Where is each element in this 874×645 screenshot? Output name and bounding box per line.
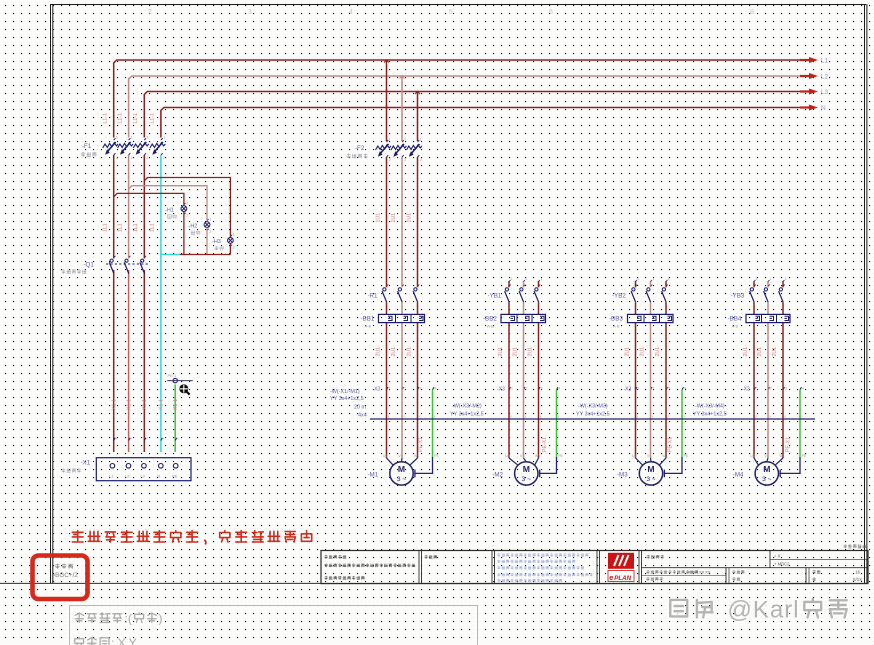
svg-text:4: 4 bbox=[435, 387, 437, 391]
svg-text:M: M bbox=[647, 464, 654, 474]
svg-text:1U1: 1U1 bbox=[391, 213, 397, 223]
svg-text:2U1: 2U1 bbox=[375, 347, 381, 357]
svg-text:4x4: 4x4 bbox=[358, 413, 367, 419]
svg-text:PE-X1: PE-X1 bbox=[418, 437, 424, 452]
svg-text:4: 4 bbox=[684, 387, 686, 391]
svg-text:4: 4 bbox=[802, 387, 804, 391]
svg-text:V1: V1 bbox=[398, 454, 402, 458]
svg-text:3 ~: 3 ~ bbox=[762, 476, 771, 483]
svg-text:3: 3 bbox=[248, 9, 252, 16]
svg-text:16: 16 bbox=[855, 570, 860, 575]
svg-text:X/1X: X/1X bbox=[853, 577, 862, 582]
svg-text:2U1: 2U1 bbox=[639, 347, 645, 357]
svg-text:2U1: 2U1 bbox=[772, 347, 778, 357]
svg-text:-YB2: -YB2 bbox=[612, 293, 626, 300]
svg-text:1: 1 bbox=[785, 277, 787, 281]
svg-text:PE-X1: PE-X1 bbox=[668, 437, 674, 452]
svg-text:3 ~: 3 ~ bbox=[646, 476, 655, 483]
svg-text:M: M bbox=[398, 464, 405, 474]
svg-text:2: 2 bbox=[420, 158, 422, 162]
svg-text:-BB4: -BB4 bbox=[728, 316, 742, 323]
svg-text:2U1: 2U1 bbox=[498, 347, 504, 357]
svg-text:-F2: -F2 bbox=[355, 145, 365, 152]
svg-text:1L1: 1L1 bbox=[133, 223, 139, 232]
svg-text:-W(-X1/-M1): -W(-X1/-M1) bbox=[330, 389, 360, 395]
svg-text:1: 1 bbox=[668, 277, 670, 281]
svg-text:2: 2 bbox=[131, 156, 133, 160]
svg-text:1: 1 bbox=[404, 138, 406, 142]
svg-text:2U1: 2U1 bbox=[512, 347, 518, 357]
svg-text:-M4: -M4 bbox=[733, 472, 744, 479]
svg-text:-X1: -X1 bbox=[81, 460, 91, 467]
svg-text:3: 3 bbox=[541, 387, 543, 391]
svg-text:PE-X1: PE-X1 bbox=[542, 437, 548, 452]
svg-text:-W(-X3/-M4): -W(-X3/-M4) bbox=[695, 404, 725, 410]
svg-text:3: 3 bbox=[668, 387, 670, 391]
svg-text:1: 1 bbox=[525, 277, 527, 281]
svg-text:-X3: -X3 bbox=[373, 387, 381, 393]
svg-text:V1: V1 bbox=[647, 454, 651, 458]
svg-text:4: 4 bbox=[349, 9, 353, 16]
svg-text:W1: W1 bbox=[662, 454, 667, 458]
svg-text:1: 1 bbox=[163, 136, 165, 140]
svg-text:PE: PE bbox=[684, 454, 689, 458]
svg-text:L1-1: L1-1 bbox=[117, 113, 123, 123]
svg-text:@Karl: @Karl bbox=[728, 597, 800, 624]
svg-text:2U1: 2U1 bbox=[391, 347, 397, 357]
svg-text:L3: L3 bbox=[141, 475, 145, 479]
svg-text:PLAN: PLAN bbox=[614, 575, 631, 582]
svg-text:PE-X1: PE-X1 bbox=[786, 437, 792, 452]
svg-text:PE: PE bbox=[434, 454, 439, 458]
svg-text:=BGC+/2: =BGC+/2 bbox=[52, 572, 79, 579]
svg-text:1: 1 bbox=[511, 277, 513, 281]
svg-text:2: 2 bbox=[233, 246, 235, 250]
svg-text:L1: L1 bbox=[821, 58, 829, 65]
svg-text:2: 2 bbox=[389, 158, 391, 162]
svg-text:e: e bbox=[609, 573, 613, 582]
svg-text:L1-1: L1-1 bbox=[150, 113, 156, 123]
svg-text:L1-1: L1-1 bbox=[133, 113, 139, 123]
svg-text:V1: V1 bbox=[764, 454, 768, 458]
svg-text:U1: U1 bbox=[383, 454, 388, 458]
svg-text:2U1: 2U1 bbox=[527, 347, 533, 357]
svg-text:2U1: 2U1 bbox=[743, 347, 749, 357]
svg-text:x: x bbox=[163, 437, 165, 441]
svg-text:A-B: A-B bbox=[487, 324, 494, 329]
svg-text:W1: W1 bbox=[414, 454, 419, 458]
svg-text:1: 1 bbox=[511, 387, 513, 391]
svg-text:M: M bbox=[763, 464, 770, 474]
svg-text:-R1: -R1 bbox=[368, 293, 379, 300]
svg-text:-W(-X3/-M3): -W(-X3/-M3) bbox=[578, 404, 608, 410]
svg-text:-BB2: -BB2 bbox=[483, 316, 497, 323]
svg-text:1: 1 bbox=[186, 201, 188, 205]
svg-text:PE: PE bbox=[558, 454, 563, 458]
svg-text:1U1: 1U1 bbox=[406, 213, 412, 223]
svg-text:PE:1: PE:1 bbox=[168, 373, 177, 378]
svg-text:1: 1 bbox=[389, 138, 391, 142]
svg-text:1: 1 bbox=[638, 387, 640, 391]
svg-text:XXXX.XX.XX: XXXX.XX.XX bbox=[688, 571, 711, 575]
svg-text:-F1: -F1 bbox=[82, 143, 92, 150]
svg-text:4: 4 bbox=[559, 387, 561, 391]
svg-text:L3: L3 bbox=[821, 89, 829, 96]
svg-text:L2: L2 bbox=[821, 74, 829, 81]
svg-text:-X3: -X3 bbox=[742, 387, 750, 393]
svg-text:-X3: -X3 bbox=[497, 387, 505, 393]
svg-text:3 ~: 3 ~ bbox=[522, 476, 531, 483]
svg-text:-YB1: -YB1 bbox=[488, 293, 502, 300]
svg-text:-M3: -M3 bbox=[617, 472, 628, 479]
svg-text:2: 2 bbox=[163, 156, 165, 160]
svg-text:L2: L2 bbox=[125, 475, 129, 479]
svg-text:6: 6 bbox=[549, 9, 553, 16]
svg-text:20 m: 20 m bbox=[354, 405, 366, 411]
svg-text:X1-1: X1-1 bbox=[126, 399, 132, 410]
svg-text:2: 2 bbox=[526, 387, 528, 391]
svg-text:-H3: -H3 bbox=[212, 239, 221, 245]
svg-text:2: 2 bbox=[116, 156, 118, 160]
svg-text:-BB1: -BB1 bbox=[361, 316, 375, 323]
svg-text:2U1: 2U1 bbox=[757, 347, 763, 357]
svg-text:W1: W1 bbox=[535, 454, 540, 458]
svg-text:-W(-X3/-M2): -W(-X3/-M2) bbox=[452, 404, 482, 410]
svg-text:1: 1 bbox=[209, 217, 211, 221]
svg-text:PE: PE bbox=[802, 454, 807, 458]
svg-text:+ MDC2: + MDC2 bbox=[774, 562, 790, 567]
svg-text:1: 1 bbox=[116, 136, 118, 140]
svg-text:-H2: -H2 bbox=[189, 223, 198, 229]
svg-text:1: 1 bbox=[420, 138, 422, 142]
svg-text:1: 1 bbox=[756, 387, 758, 391]
svg-text:M: M bbox=[523, 464, 530, 474]
svg-text:3: 3 bbox=[420, 387, 422, 391]
svg-text:1: 1 bbox=[637, 277, 639, 281]
svg-text:-YB3: -YB3 bbox=[731, 293, 745, 300]
svg-text:N: N bbox=[157, 475, 160, 479]
svg-text:1: 1 bbox=[233, 233, 235, 237]
svg-text:-Q1: -Q1 bbox=[84, 262, 95, 269]
svg-text:U1: U1 bbox=[505, 454, 510, 458]
svg-text:3 ~: 3 ~ bbox=[397, 476, 406, 483]
svg-text::(: :( bbox=[125, 612, 132, 626]
svg-text:2U1: 2U1 bbox=[624, 347, 630, 357]
svg-text:U1: U1 bbox=[750, 454, 755, 458]
svg-text:L1: L1 bbox=[109, 475, 113, 479]
svg-text:YY 3x4+1x2,5: YY 3x4+1x2,5 bbox=[576, 412, 610, 418]
svg-text:-M2: -M2 bbox=[492, 472, 503, 479]
svg-text:5: 5 bbox=[449, 9, 453, 16]
svg-text:A-B: A-B bbox=[365, 324, 372, 329]
svg-text:YY 3x4+1x2,5: YY 3x4+1x2,5 bbox=[450, 412, 484, 418]
svg-text:-M1: -M1 bbox=[368, 472, 379, 479]
svg-text:2: 2 bbox=[770, 387, 772, 391]
svg-text:1U1: 1U1 bbox=[375, 213, 381, 223]
svg-text:2U1: 2U1 bbox=[655, 347, 661, 357]
svg-text:L1-1: L1-1 bbox=[103, 113, 109, 123]
svg-text:2: 2 bbox=[404, 158, 406, 162]
svg-text:X1-1: X1-1 bbox=[173, 399, 179, 410]
svg-text:A-B: A-B bbox=[732, 324, 739, 329]
svg-text:1: 1 bbox=[770, 277, 772, 281]
svg-text:1L1: 1L1 bbox=[103, 223, 109, 232]
svg-text:1L1: 1L1 bbox=[117, 223, 123, 232]
svg-text:: X Y: : X Y bbox=[111, 636, 137, 645]
svg-text:1: 1 bbox=[131, 136, 133, 140]
svg-text:= X: = X bbox=[774, 554, 781, 559]
svg-text:PE: PE bbox=[172, 475, 178, 479]
svg-text:W1: W1 bbox=[779, 454, 784, 458]
svg-text:1: 1 bbox=[147, 136, 149, 140]
svg-text:x: x bbox=[146, 437, 148, 441]
svg-text:YY 3x4+1x2,5: YY 3x4+1x2,5 bbox=[330, 396, 364, 402]
svg-text:x: x bbox=[116, 437, 118, 441]
svg-text:2: 2 bbox=[148, 9, 152, 16]
svg-text:2: 2 bbox=[653, 387, 655, 391]
svg-text:1: 1 bbox=[756, 277, 758, 281]
svg-text:N: N bbox=[821, 105, 826, 112]
svg-text:8: 8 bbox=[750, 9, 754, 16]
svg-text:1: 1 bbox=[540, 277, 542, 281]
svg-text:x: x bbox=[177, 437, 179, 441]
svg-text:1L1: 1L1 bbox=[150, 223, 156, 232]
svg-text:7: 7 bbox=[650, 9, 654, 16]
svg-text:2: 2 bbox=[147, 156, 149, 160]
svg-text:2U1: 2U1 bbox=[406, 347, 412, 357]
svg-text:X1-1: X1-1 bbox=[159, 399, 165, 410]
svg-text:): ) bbox=[159, 612, 163, 626]
svg-text:-X3: -X3 bbox=[624, 387, 632, 393]
svg-text:1: 1 bbox=[652, 277, 654, 281]
svg-text:2: 2 bbox=[186, 214, 188, 218]
svg-text:3: 3 bbox=[785, 387, 787, 391]
svg-text:1: 1 bbox=[389, 387, 391, 391]
svg-text:X1-1: X1-1 bbox=[112, 399, 118, 410]
svg-text:2: 2 bbox=[209, 230, 211, 234]
svg-text:YY 3x4+1x2,5: YY 3x4+1x2,5 bbox=[693, 412, 727, 418]
svg-text:A-B: A-B bbox=[613, 324, 620, 329]
svg-text:X1-1: X1-1 bbox=[142, 399, 148, 410]
svg-text:2: 2 bbox=[404, 387, 406, 391]
svg-text:U1: U1 bbox=[632, 454, 637, 458]
svg-text:-BB3: -BB3 bbox=[609, 316, 623, 323]
svg-text:-H1: -H1 bbox=[165, 207, 174, 213]
svg-text:V1: V1 bbox=[520, 454, 524, 458]
svg-text:x: x bbox=[130, 437, 132, 441]
